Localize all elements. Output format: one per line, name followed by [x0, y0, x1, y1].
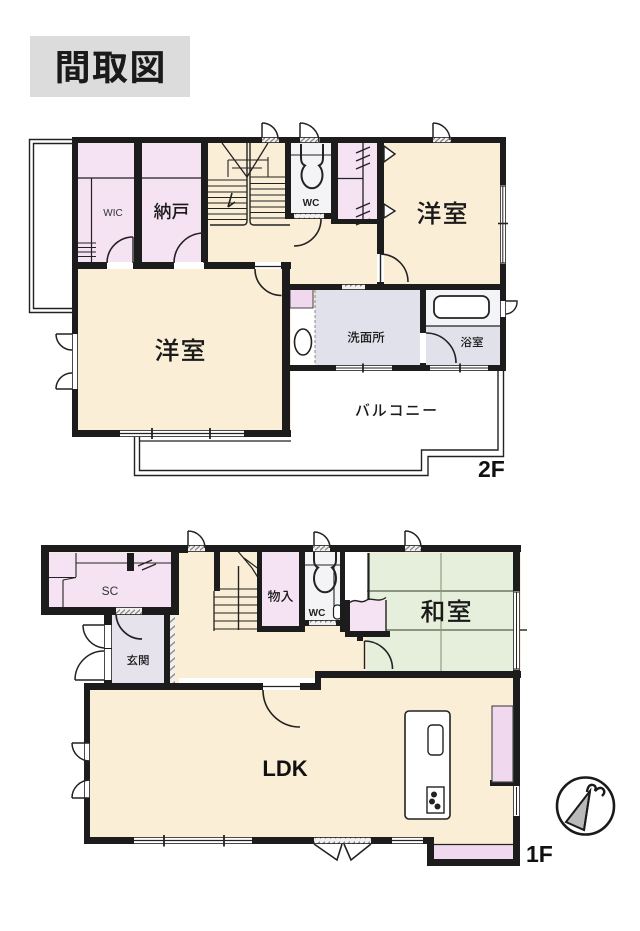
svg-text:1F: 1F: [526, 841, 553, 867]
svg-text:2F: 2F: [478, 456, 505, 482]
svg-text:WC: WC: [309, 608, 326, 619]
svg-text:WC: WC: [303, 198, 320, 209]
svg-text:LDK: LDK: [262, 756, 307, 781]
svg-text:SC: SC: [102, 584, 119, 598]
svg-text:WIC: WIC: [103, 208, 122, 219]
